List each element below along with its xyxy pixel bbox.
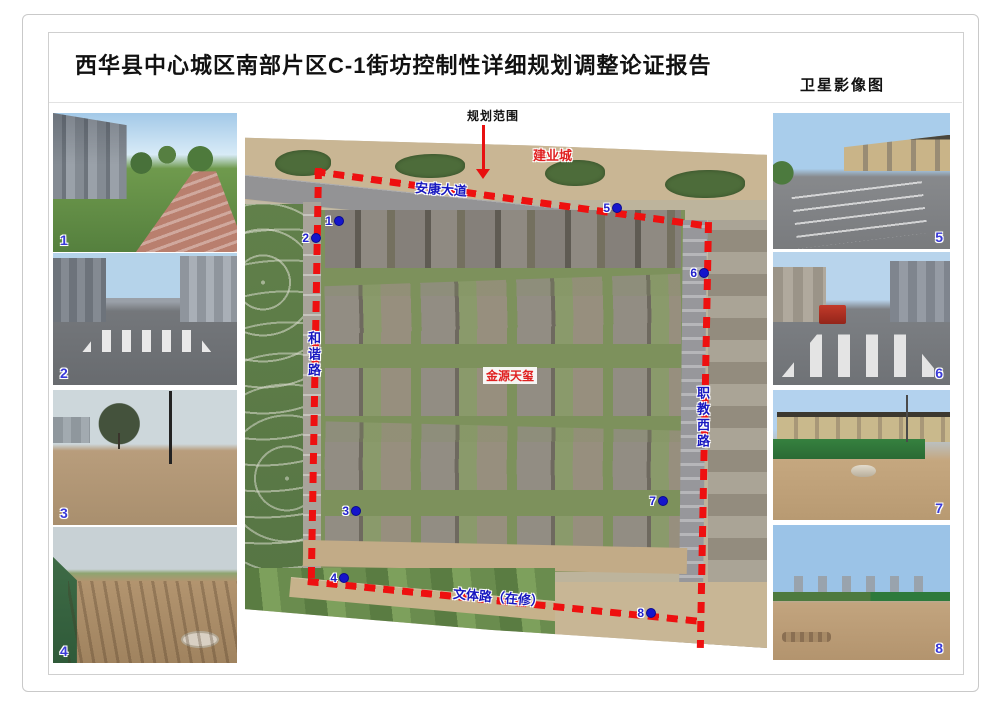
marker-dot (339, 573, 349, 583)
tree-cluster (665, 170, 745, 198)
photo-7-scene (773, 390, 950, 520)
marker-dot (334, 216, 344, 226)
site-photo-5: 5 (773, 113, 950, 249)
site-photo-8: 8 (773, 525, 950, 660)
building-row (325, 210, 681, 268)
map-marker-5: 5 (600, 200, 622, 216)
marker-dot (699, 268, 709, 278)
map-type-label: 卫星影像图 (800, 74, 885, 95)
furrow-texture (68, 581, 237, 663)
photo-3-scene (53, 390, 237, 525)
landmark-label-jianyecheng: 建业城 (533, 145, 572, 164)
pipe-graphic (851, 465, 876, 477)
landmark-label-jinyuantianxi: 金源天玺 (483, 367, 537, 384)
site-photo-7: 7 (773, 390, 950, 520)
marker-number: 2 (299, 231, 309, 245)
marker-number: 5 (600, 201, 610, 215)
title-separator (49, 102, 962, 103)
photo-number-badge: 8 (935, 640, 943, 656)
map-park (245, 204, 305, 596)
photo-number-badge: 7 (935, 500, 943, 516)
photo-2-scene (53, 253, 237, 385)
building-silhouette (53, 417, 90, 443)
map-marker-8: 8 (634, 605, 656, 621)
site-photo-3: 3 (53, 390, 237, 525)
map-marker-6: 6 (687, 265, 709, 281)
photo-number-badge: 2 (60, 365, 68, 381)
photo-number-badge: 3 (60, 505, 68, 521)
marker-dot (351, 506, 361, 516)
photo-number-badge: 4 (60, 643, 68, 659)
road-label-ankang: 安康大道 (414, 177, 467, 200)
road-label-zhijiao: 职教西路 (693, 386, 712, 450)
tree-cluster (395, 154, 465, 178)
site-photo-6: 6 (773, 252, 950, 385)
scope-arrow-head (476, 169, 490, 179)
marker-number: 1 (322, 214, 332, 228)
satellite-map: 规划范围 建业城 安康大道 和谐路 金源天玺 职教西路 文体路（在修） 1 2 … (245, 105, 767, 648)
marker-dot (658, 496, 668, 506)
marker-dot (311, 233, 321, 243)
photo-5-scene (773, 113, 950, 249)
photo-number-badge: 5 (935, 229, 943, 245)
map-marker-3: 3 (339, 503, 361, 519)
road-label-hexie: 和谐路 (304, 331, 323, 379)
lamp-post-graphic (906, 395, 908, 442)
page-title: 西华县中心城区南部片区C-1街坊控制性详细规划调整论证报告 (75, 48, 711, 80)
site-photo-4: 4 (53, 527, 237, 663)
map-marker-4: 4 (327, 570, 349, 586)
scope-label: 规划范围 (467, 107, 519, 124)
marker-number: 3 (339, 504, 349, 518)
marker-number: 8 (634, 606, 644, 620)
map-marker-2: 2 (299, 230, 321, 246)
photo-1-scene (53, 113, 237, 252)
map-marker-7: 7 (646, 493, 668, 509)
photo-number-badge: 1 (60, 232, 68, 248)
marker-number: 6 (687, 266, 697, 280)
crosswalk-graphic (82, 330, 211, 352)
site-photo-2: 2 (53, 253, 237, 385)
report-page: 西华县中心城区南部片区C-1街坊控制性详细规划调整论证报告 卫星影像图 1 2 … (0, 0, 1000, 707)
marker-dot (646, 608, 656, 618)
marker-dot (612, 203, 622, 213)
internal-path (324, 421, 681, 478)
marker-number: 7 (646, 494, 656, 508)
satellite-image (245, 130, 767, 648)
map-marker-1: 1 (322, 213, 344, 229)
rubble-graphic (782, 632, 832, 643)
photo-number-badge: 6 (935, 365, 943, 381)
truck-graphic (819, 305, 846, 324)
site-photo-1: 1 (53, 113, 237, 252)
map-residential-blocks (321, 210, 685, 572)
scope-arrow-line (482, 125, 485, 171)
marker-number: 4 (327, 571, 337, 585)
